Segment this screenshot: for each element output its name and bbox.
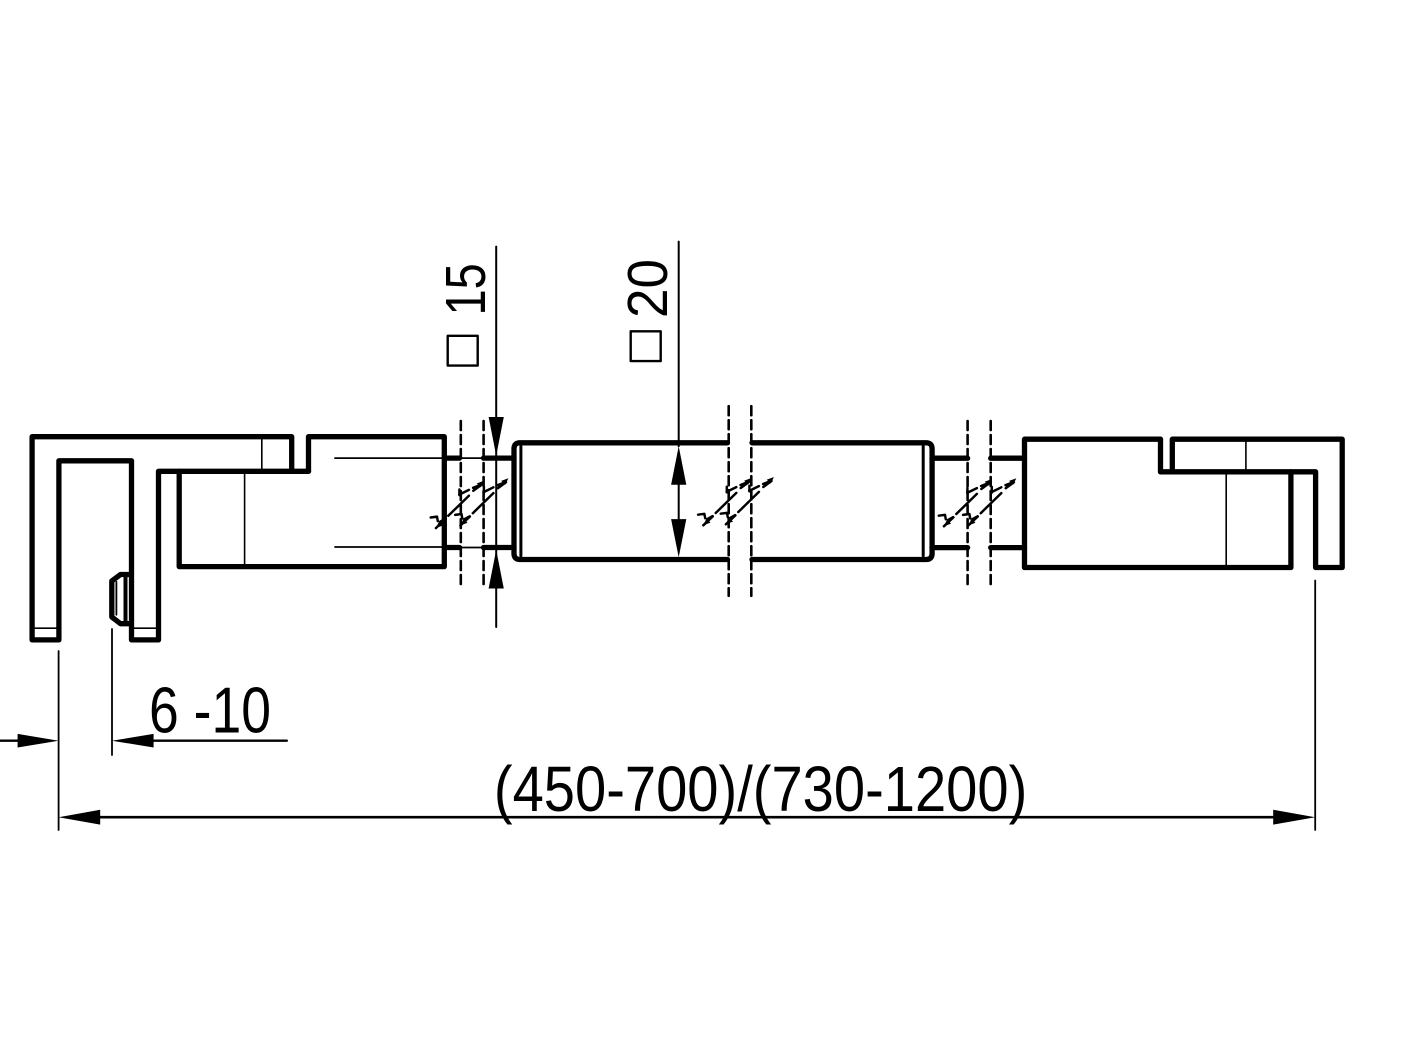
svg-text:20: 20 [616, 259, 679, 318]
svg-text:6 -10: 6 -10 [149, 674, 271, 747]
svg-text:(450-700)/(730-1200): (450-700)/(730-1200) [494, 753, 1027, 825]
svg-text:15: 15 [434, 263, 498, 315]
